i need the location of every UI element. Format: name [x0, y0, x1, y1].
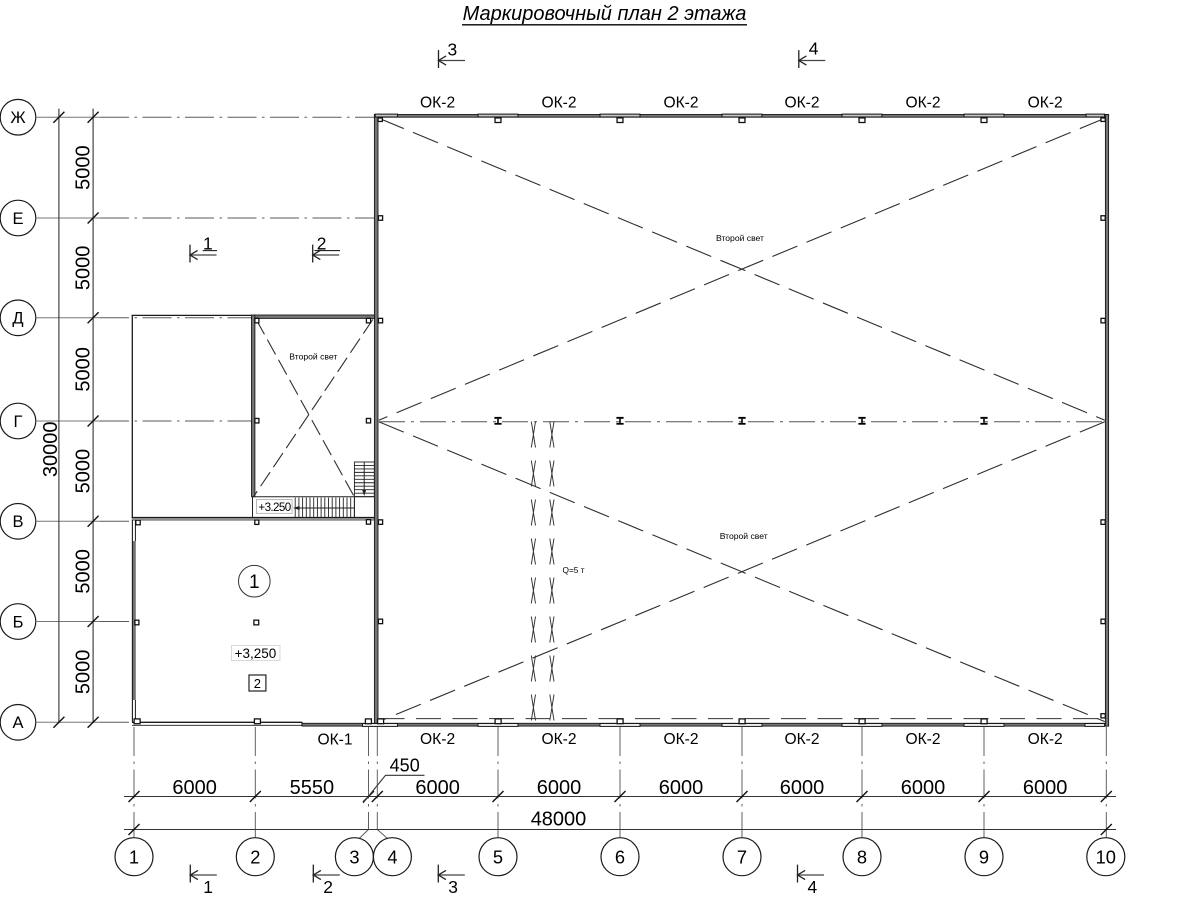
svg-text:А: А	[12, 714, 23, 732]
svg-text:7: 7	[737, 846, 747, 867]
svg-text:9: 9	[979, 846, 989, 867]
svg-text:48000: 48000	[531, 809, 587, 831]
svg-text:5000: 5000	[73, 347, 95, 392]
svg-text:+3,250: +3,250	[235, 646, 277, 661]
svg-text:6000: 6000	[780, 777, 825, 799]
svg-text:5550: 5550	[290, 777, 335, 799]
svg-text:Г: Г	[14, 413, 23, 431]
svg-text:ОК-2: ОК-2	[905, 95, 940, 112]
svg-text:Второй свет: Второй свет	[716, 233, 764, 243]
svg-text:1: 1	[203, 877, 213, 897]
svg-text:3: 3	[448, 877, 458, 897]
svg-text:ОК-2: ОК-2	[663, 731, 698, 748]
svg-text:4: 4	[809, 39, 819, 59]
svg-text:1: 1	[129, 846, 139, 867]
svg-text:450: 450	[390, 756, 420, 776]
svg-text:6000: 6000	[659, 777, 704, 799]
svg-text:ОК-2: ОК-2	[1028, 95, 1063, 112]
svg-text:2: 2	[254, 676, 261, 691]
svg-text:6000: 6000	[901, 777, 946, 799]
svg-text:ОК-2: ОК-2	[541, 731, 576, 748]
svg-text:2: 2	[250, 846, 260, 867]
svg-text:Ж: Ж	[10, 109, 26, 127]
svg-text:Б: Б	[13, 613, 24, 631]
svg-text:Д: Д	[12, 310, 23, 328]
svg-text:5: 5	[493, 846, 503, 867]
svg-text:4: 4	[808, 877, 818, 897]
svg-text:Второй свет: Второй свет	[289, 351, 337, 361]
svg-text:ОК-2: ОК-2	[1028, 731, 1063, 748]
svg-text:6000: 6000	[537, 777, 582, 799]
svg-text:5000: 5000	[73, 246, 95, 291]
svg-text:6: 6	[615, 846, 625, 867]
svg-text:ОК-2: ОК-2	[541, 95, 576, 112]
svg-text:5000: 5000	[73, 145, 95, 190]
svg-text:Маркировочный план 2 этажа: Маркировочный план 2 этажа	[463, 3, 747, 25]
svg-text:ОК-2: ОК-2	[420, 731, 455, 748]
svg-text:ОК-2: ОК-2	[905, 731, 940, 748]
svg-text:6000: 6000	[1023, 777, 1068, 799]
svg-text:5000: 5000	[73, 449, 95, 494]
svg-text:ОК-2: ОК-2	[420, 95, 455, 112]
svg-text:В: В	[12, 513, 23, 531]
svg-text:5000: 5000	[73, 549, 95, 594]
svg-text:6000: 6000	[172, 777, 217, 799]
svg-text:3: 3	[448, 40, 458, 60]
svg-text:ОК-2: ОК-2	[663, 95, 698, 112]
svg-text:ОК-2: ОК-2	[784, 731, 819, 748]
svg-text:5000: 5000	[73, 650, 95, 695]
svg-text:2: 2	[323, 877, 333, 897]
svg-text:6000: 6000	[415, 777, 460, 799]
svg-text:Е: Е	[12, 210, 23, 228]
svg-text:10: 10	[1096, 846, 1116, 867]
svg-text:+3.250: +3.250	[258, 501, 290, 514]
svg-text:ОК-2: ОК-2	[784, 95, 819, 112]
svg-text:Q=5 т: Q=5 т	[563, 565, 585, 575]
svg-text:30000: 30000	[40, 421, 62, 477]
svg-text:4: 4	[387, 846, 397, 867]
svg-text:3: 3	[349, 846, 359, 867]
svg-text:Второй свет: Второй свет	[720, 531, 768, 541]
svg-text:8: 8	[857, 846, 867, 867]
svg-text:ОК-1: ОК-1	[317, 732, 352, 749]
svg-text:1: 1	[249, 572, 260, 593]
